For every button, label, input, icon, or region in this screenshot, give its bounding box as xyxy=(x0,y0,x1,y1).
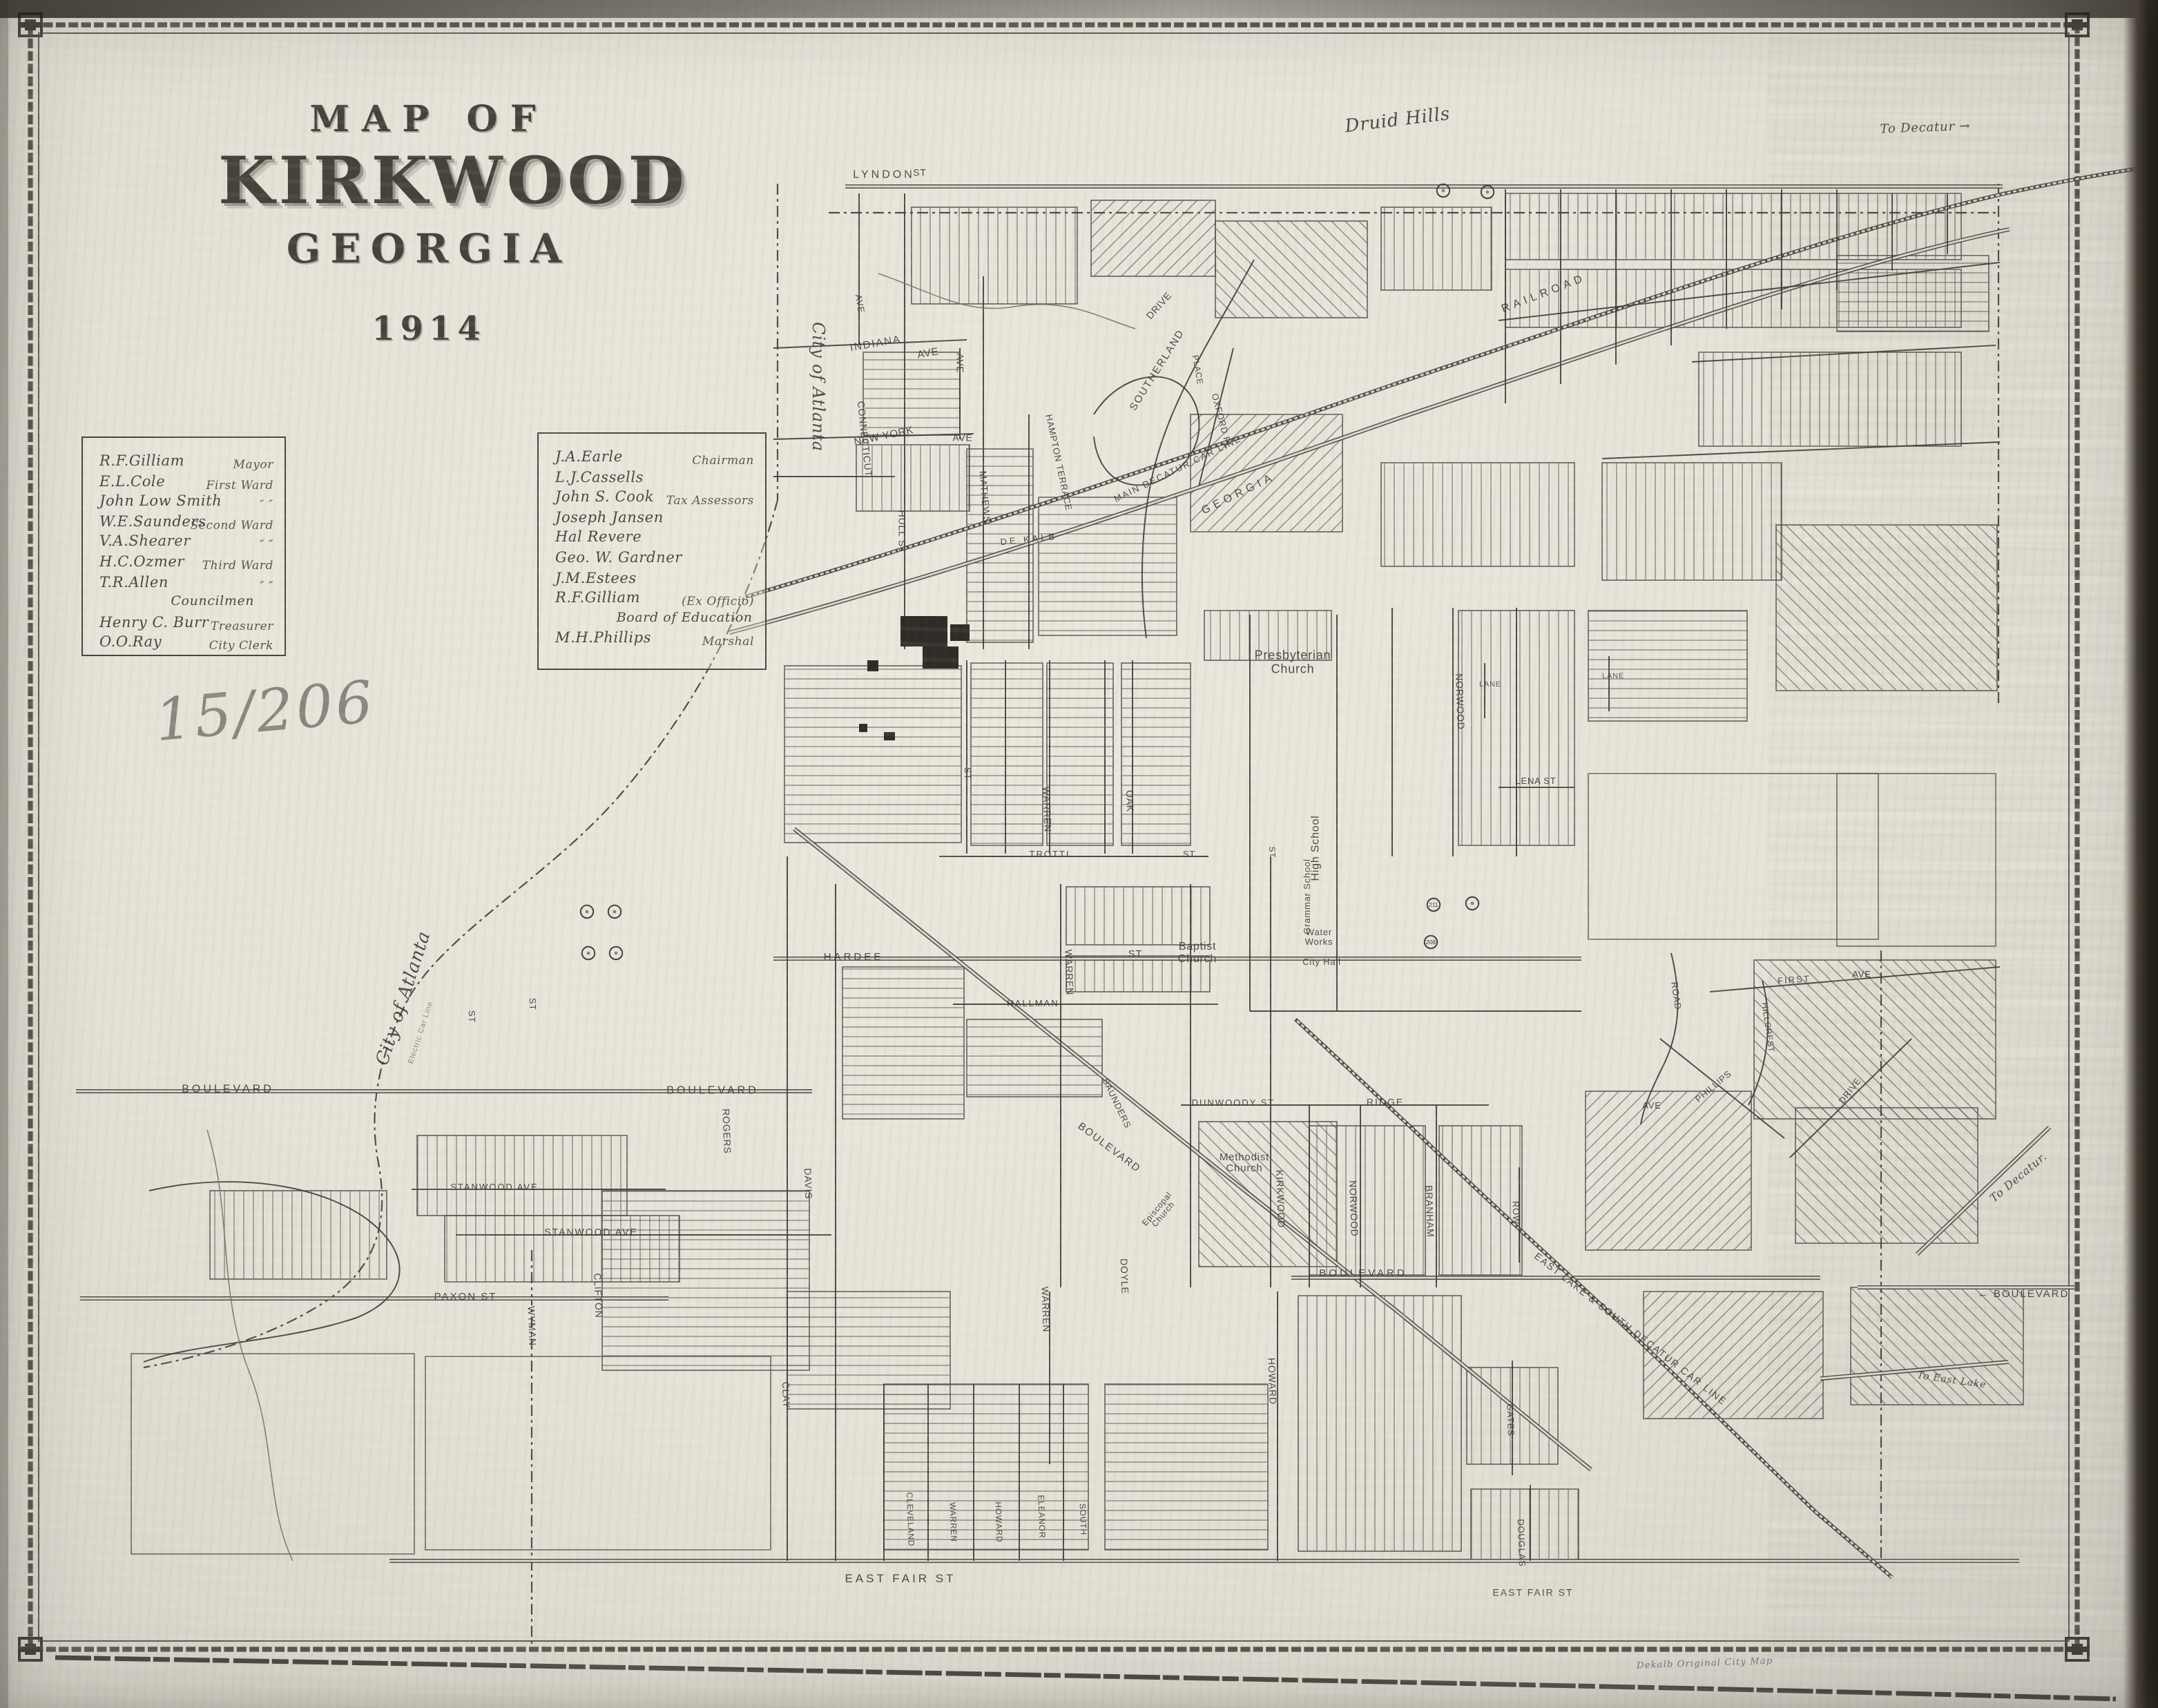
board-official-row: John S. CookTax Assessors xyxy=(555,488,754,508)
street-label: EAST FAIR ST xyxy=(845,1573,956,1585)
map-title-block: MAP OF KIRKWOOD GEORGIA 1914 xyxy=(218,99,639,348)
street-label: DOYLE xyxy=(1117,1258,1129,1294)
board-official-row: Board of Education xyxy=(555,609,754,629)
street-label: LANE xyxy=(1479,682,1501,691)
board-official-row: J.M.Estees xyxy=(555,568,754,588)
city-official-row: O.O.RayCity Clerk xyxy=(99,633,273,653)
street-label: GATES xyxy=(1504,1403,1515,1437)
map-script-label: City of Atlanta xyxy=(809,322,827,452)
street-label: OAK xyxy=(1123,790,1134,812)
street-label: ST xyxy=(1128,949,1143,960)
street-label: RIDGE xyxy=(1367,1098,1404,1109)
street-label: Methodist Church xyxy=(1220,1152,1269,1174)
street-label: HULL ST xyxy=(895,510,905,554)
street-label: SOUTH xyxy=(1077,1504,1087,1535)
street-label: ST xyxy=(1266,846,1275,858)
street-label: CLEVELAND xyxy=(903,1493,914,1547)
city-official-row: John Low Smith″ ″ xyxy=(99,492,273,512)
city-official-row: R.F.GilliamMayor xyxy=(99,452,273,472)
board-official-row: Hal Revere xyxy=(555,528,754,548)
street-label: LYNDON xyxy=(853,169,915,181)
svg-text:208: 208 xyxy=(1426,939,1436,946)
board-officials-box: J.A.EarleChairmanL.J.CassellsJohn S. Coo… xyxy=(537,432,767,670)
street-label: CLAY xyxy=(779,1381,790,1408)
city-official-row: V.A.Shearer″ ″ xyxy=(99,532,273,553)
street-label: AVE xyxy=(953,353,963,373)
street-label: Grammar School xyxy=(1303,858,1313,934)
street-label: ← BOULEVARD xyxy=(1978,1289,2070,1300)
street-label: DUNWOODY ST xyxy=(1192,1099,1275,1109)
board-official-row: L.J.Cassells xyxy=(555,468,754,488)
street-label: HARDEE xyxy=(824,952,884,963)
street-label: BRANHAM xyxy=(1422,1185,1434,1238)
street-label: NORWOOD xyxy=(1452,673,1465,730)
street-label: BOULEVARD xyxy=(182,1084,274,1095)
street-label: NORWOOD xyxy=(1346,1180,1358,1237)
street-label: STANWOOD AVE xyxy=(450,1183,539,1193)
street-label: KIRKWOOD xyxy=(1273,1170,1285,1229)
scan-edge-top xyxy=(0,0,2158,18)
street-label: DOUGLAS xyxy=(1515,1519,1526,1567)
street-label: Baptist Church xyxy=(1178,941,1217,966)
board-official-row: Joseph Jansen xyxy=(555,508,754,528)
city-official-row: T.R.Allen″ ″ xyxy=(99,573,273,593)
street-label: ST xyxy=(527,998,537,1011)
street-label: ST xyxy=(913,169,927,179)
map-sheet: 211208 MAP OF KIRKWOOD GEORGIA 1914 R.F.… xyxy=(0,0,2158,1708)
street-label: WYMAN xyxy=(524,1306,536,1346)
street-label: HALLMAN xyxy=(1007,999,1059,1009)
street-label: EAST FAIR ST xyxy=(1492,1589,1573,1599)
city-official-row: Councilmen xyxy=(99,593,273,613)
board-official-row: M.H.PhillipsMarshal xyxy=(555,629,754,649)
street-label: ROGERS xyxy=(719,1109,731,1154)
street-label: STANWOOD AVE xyxy=(544,1228,638,1238)
street-label: ST xyxy=(1183,850,1195,860)
board-official-row: R.F.Gilliam(Ex Officio) xyxy=(555,588,754,608)
street-label: BOULEVARD xyxy=(1319,1268,1407,1279)
title-state: GEORGIA xyxy=(218,225,639,272)
street-label: LENA ST xyxy=(1515,777,1556,787)
title-city-name: KIRKWOOD xyxy=(218,144,639,220)
street-label: CLIFTON xyxy=(590,1273,602,1318)
street-label: DAVIS xyxy=(801,1168,813,1199)
city-official-row: H.C.OzmerThird Ward xyxy=(99,553,273,573)
street-label: ELEANOR xyxy=(1034,1495,1045,1538)
svg-text:211: 211 xyxy=(1429,901,1438,908)
street-label: WARREN xyxy=(1039,786,1051,832)
street-label: PAXON ST xyxy=(434,1292,497,1303)
city-official-row: W.E.SaundersSecond Ward xyxy=(99,512,273,532)
street-label: AVE xyxy=(952,434,972,444)
street-label: HOWARD xyxy=(992,1501,1003,1542)
street-label: HOWARD xyxy=(1264,1358,1276,1405)
city-official-row: Henry C. BurrTreasurer xyxy=(99,613,273,633)
scan-edge-left xyxy=(0,0,8,1708)
street-label: City Hall xyxy=(1302,958,1341,968)
scan-edge-right xyxy=(2122,0,2158,1708)
board-official-row: Geo. W. Gardner xyxy=(555,548,754,568)
title-map-of: MAP OF xyxy=(218,99,639,141)
city-official-row: E.L.ColeFirst Ward xyxy=(99,472,273,492)
street-label: WARREN xyxy=(1061,949,1073,995)
street-label: BOULEVARD xyxy=(666,1085,759,1097)
street-label: ST xyxy=(466,1010,476,1024)
street-label: ROW xyxy=(1510,1201,1520,1225)
city-officials-box: R.F.GilliamMayorE.L.ColeFirst WardJohn L… xyxy=(81,436,286,656)
board-official-row: J.A.EarleChairman xyxy=(555,448,754,468)
street-label: AVE xyxy=(1642,1102,1661,1111)
street-label: AVE xyxy=(1852,970,1871,980)
street-label: TROTTI xyxy=(1030,850,1070,860)
street-label: Water Works xyxy=(1305,928,1333,948)
street-label: LANE xyxy=(1602,674,1624,682)
street-label: WARREN xyxy=(1038,1286,1050,1332)
street-label: WARREN xyxy=(947,1502,957,1542)
street-label: ST xyxy=(962,767,972,780)
scanned-map-page: 211208 MAP OF KIRKWOOD GEORGIA 1914 R.F.… xyxy=(0,0,2158,1708)
street-label: Presbyterian Church xyxy=(1255,650,1331,677)
title-year: 1914 xyxy=(218,308,639,348)
